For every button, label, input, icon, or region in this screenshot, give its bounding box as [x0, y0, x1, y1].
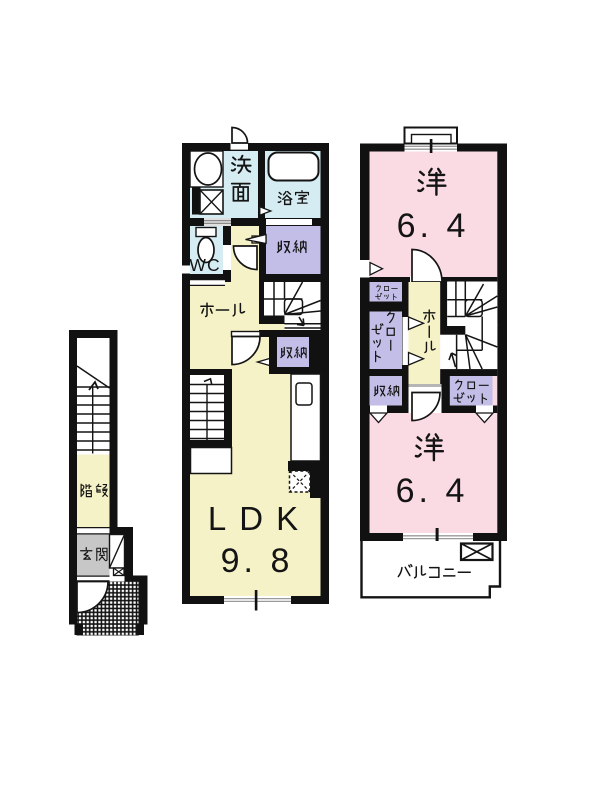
svg-text:6. 4: 6. 4 — [396, 472, 469, 510]
svg-text:9. 8: 9. 8 — [221, 542, 294, 580]
svg-text:6. 4: 6. 4 — [397, 207, 470, 245]
svg-text:LDK: LDK — [208, 500, 311, 537]
svg-text:WC: WC — [189, 255, 220, 275]
